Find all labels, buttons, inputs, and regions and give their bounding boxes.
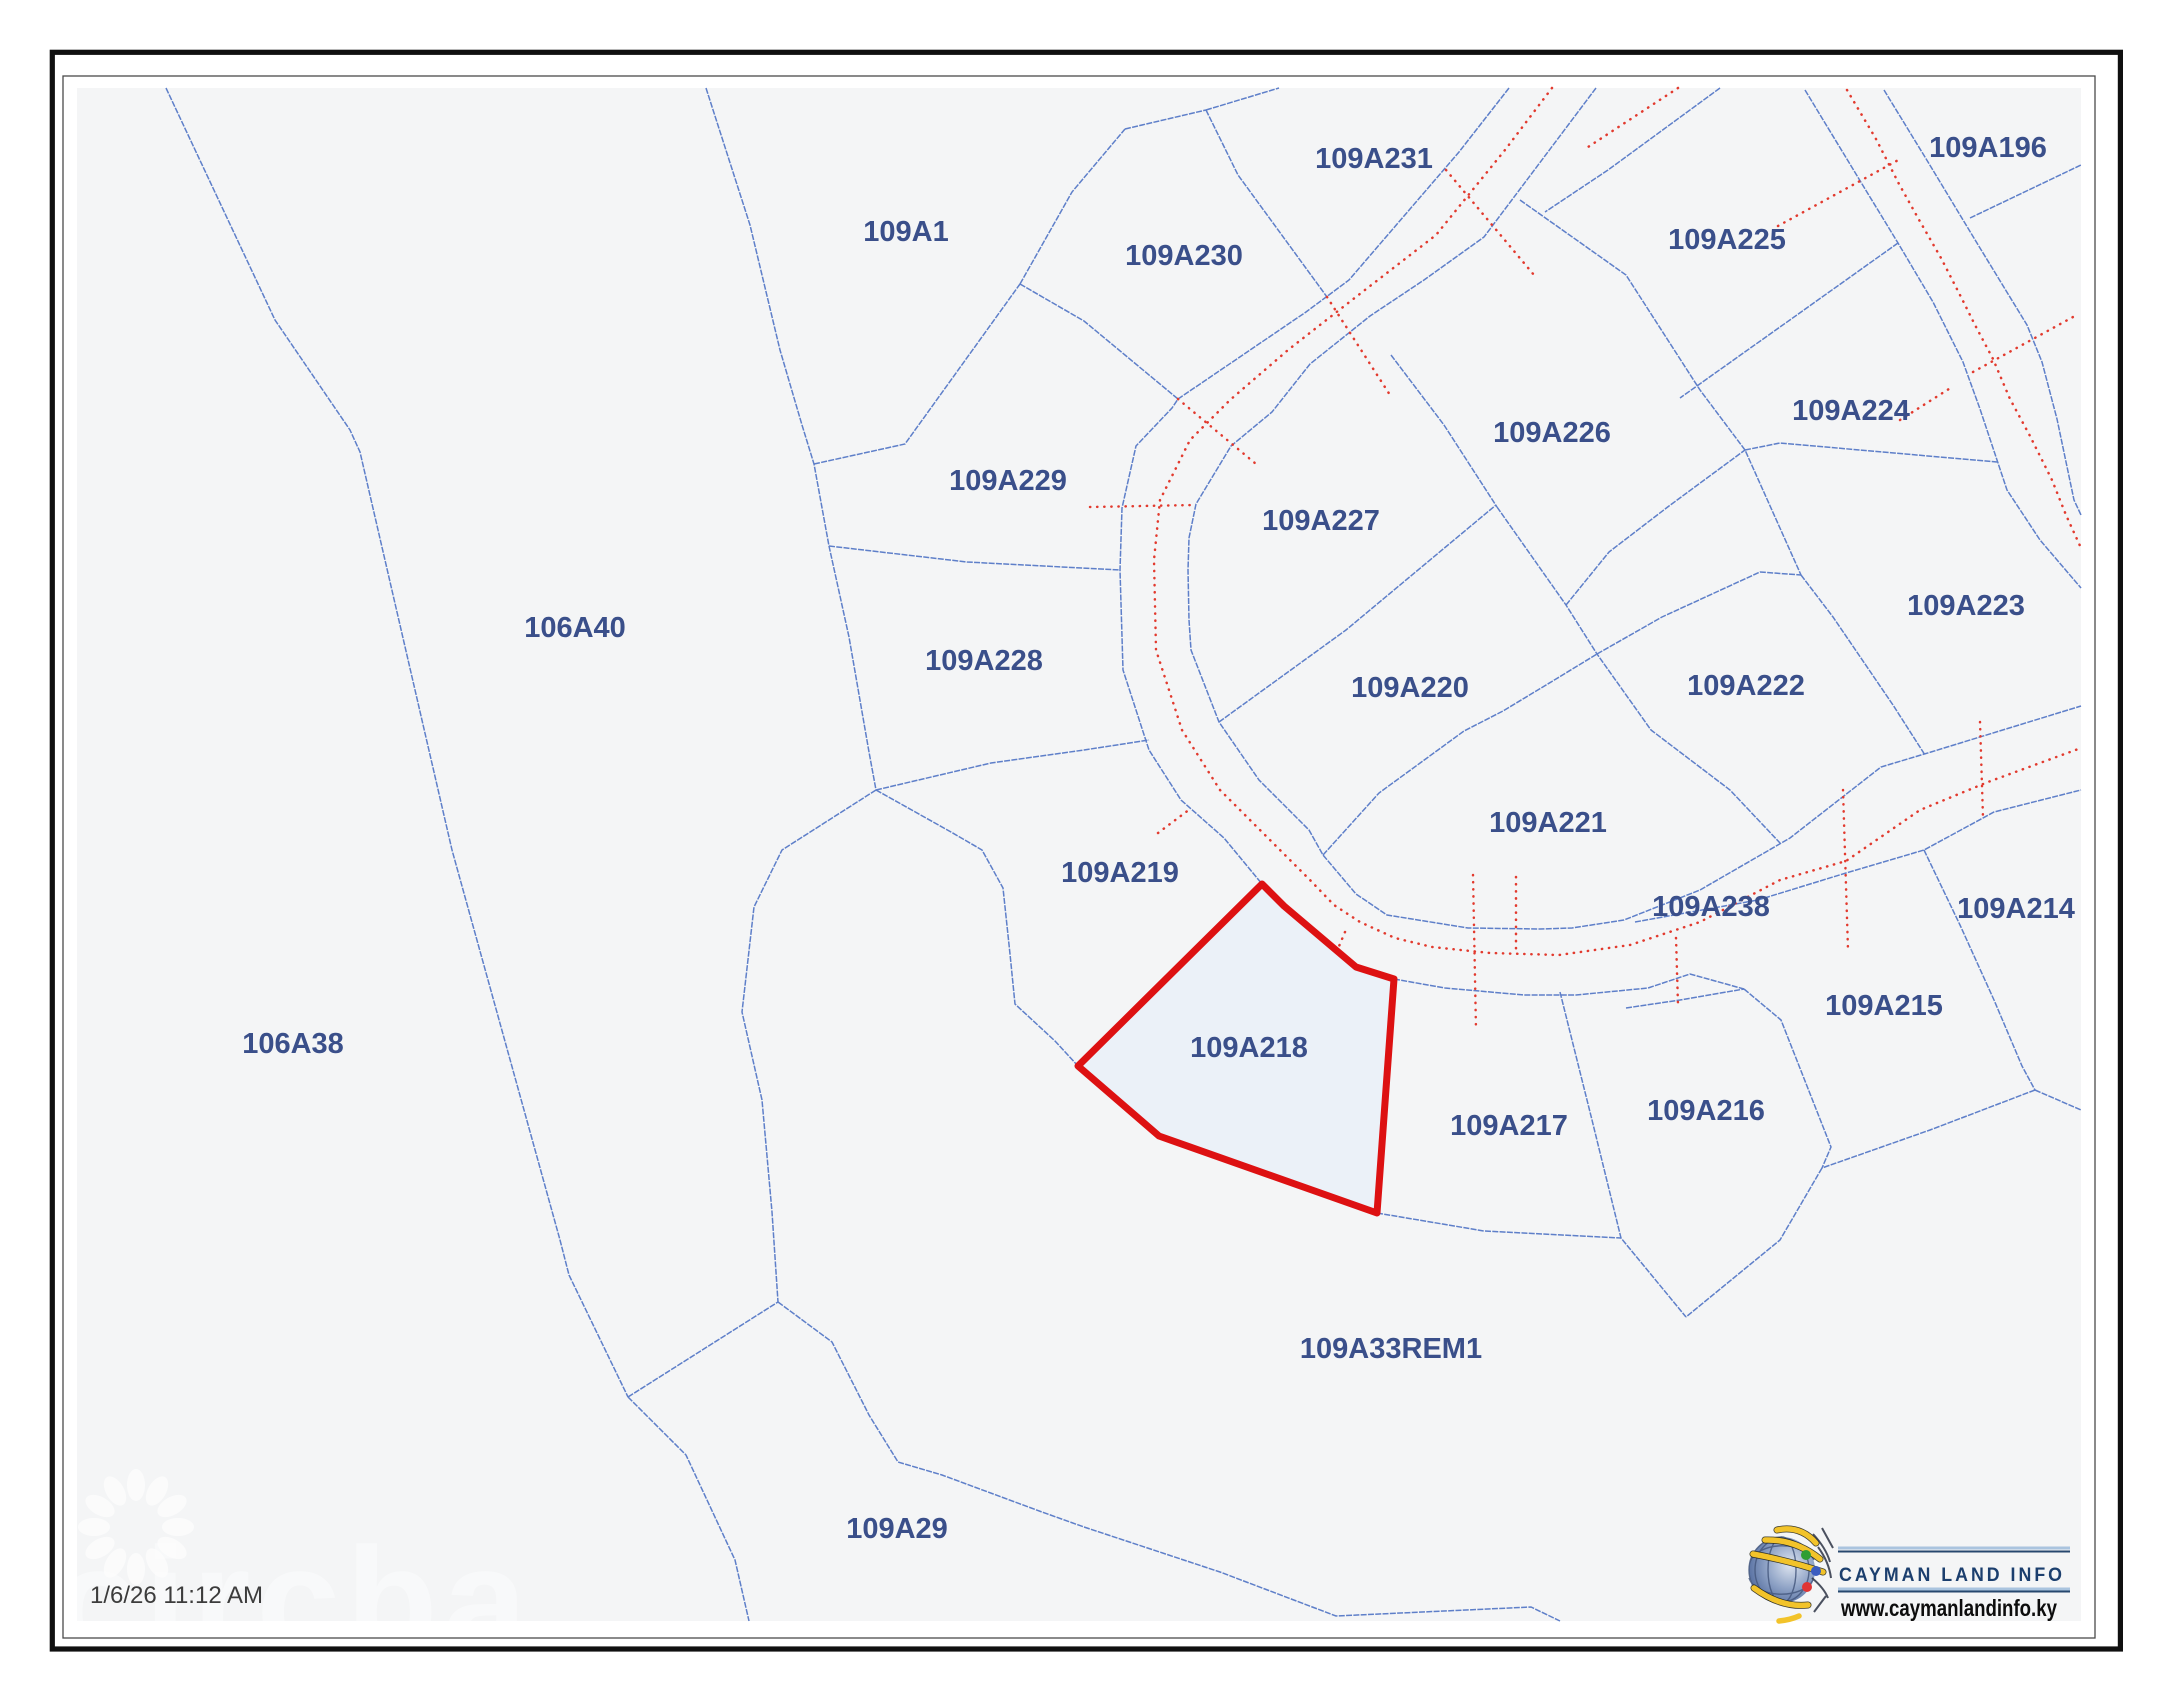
svg-text:109A221: 109A221 (1489, 807, 1607, 839)
svg-text:106A40: 106A40 (524, 612, 626, 644)
svg-text:109A231: 109A231 (1315, 143, 1433, 175)
svg-text:109A214: 109A214 (1957, 893, 2075, 925)
svg-text:109A29: 109A29 (846, 1513, 948, 1545)
svg-text:109A222: 109A222 (1687, 670, 1805, 702)
svg-text:1/6/26 11:12 AM: 1/6/26 11:12 AM (90, 1582, 263, 1609)
svg-text:www.caymanlandinfo.ky: www.caymanlandinfo.ky (1840, 1595, 2057, 1621)
svg-text:109A226: 109A226 (1493, 417, 1611, 449)
svg-text:109A216: 109A216 (1647, 1095, 1765, 1127)
svg-text:109A219: 109A219 (1061, 857, 1179, 889)
svg-text:109A215: 109A215 (1825, 990, 1943, 1022)
svg-text:109A220: 109A220 (1351, 672, 1469, 704)
svg-text:109A225: 109A225 (1668, 224, 1786, 256)
svg-text:109A230: 109A230 (1125, 240, 1243, 272)
svg-text:109A238: 109A238 (1652, 891, 1770, 923)
svg-text:109A217: 109A217 (1450, 1110, 1568, 1142)
svg-text:109A229: 109A229 (949, 465, 1067, 497)
svg-text:109A227: 109A227 (1262, 505, 1380, 537)
svg-text:109A224: 109A224 (1792, 395, 1910, 427)
svg-text:109A223: 109A223 (1907, 590, 2025, 622)
svg-text:109A218: 109A218 (1190, 1032, 1308, 1064)
svg-text:CAYMAN LAND INFO: CAYMAN LAND INFO (1839, 1565, 2065, 1586)
svg-text:109A228: 109A228 (925, 645, 1043, 677)
svg-text:109A196: 109A196 (1929, 132, 2047, 164)
svg-text:106A38: 106A38 (242, 1028, 344, 1060)
svg-text:109A1: 109A1 (863, 216, 948, 248)
svg-text:109A33REM1: 109A33REM1 (1300, 1333, 1482, 1365)
